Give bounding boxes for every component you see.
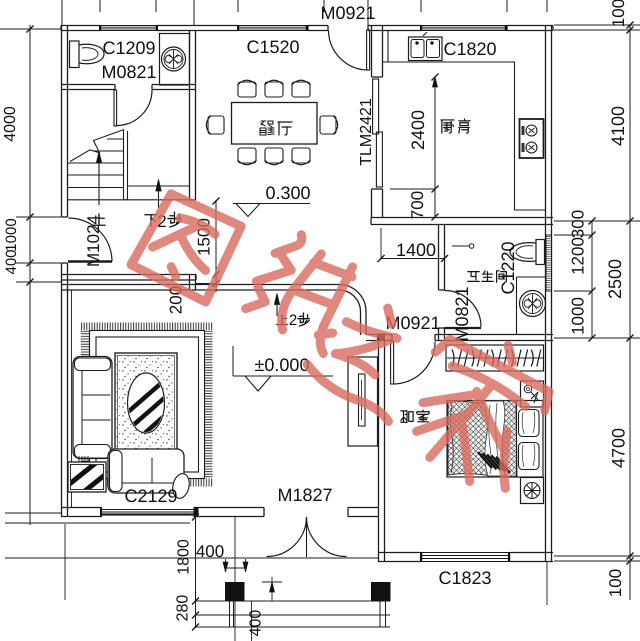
svg-text:100: 100 [609, 0, 628, 27]
svg-text:±0.000: ±0.000 [255, 355, 310, 375]
svg-text:300: 300 [569, 210, 588, 238]
svg-text:100: 100 [606, 569, 625, 597]
svg-text:M1827: M1827 [277, 485, 332, 505]
svg-text:2400: 2400 [408, 110, 428, 150]
svg-text:2: 2 [289, 312, 297, 329]
svg-text:M1024: M1024 [84, 215, 103, 267]
svg-text:1000: 1000 [3, 218, 20, 251]
svg-text:C1209: C1209 [102, 38, 155, 58]
svg-text:C2129: C2129 [124, 486, 177, 506]
svg-text:400: 400 [196, 542, 224, 561]
svg-text:1400: 1400 [396, 240, 436, 260]
svg-text:400: 400 [248, 610, 265, 637]
svg-text:M0921: M0921 [320, 3, 375, 23]
svg-text:1800: 1800 [176, 539, 193, 575]
svg-text:0.300: 0.300 [265, 183, 310, 203]
svg-text:400: 400 [3, 249, 20, 274]
svg-text:M0821: M0821 [452, 286, 472, 341]
svg-text:C1520: C1520 [246, 37, 299, 57]
svg-text:1200: 1200 [569, 237, 588, 275]
svg-text:4000: 4000 [2, 106, 19, 142]
svg-text:C1820: C1820 [443, 39, 496, 59]
svg-text:1000: 1000 [569, 297, 588, 335]
svg-text:4100: 4100 [608, 106, 628, 146]
svg-text:2500: 2500 [605, 259, 625, 299]
svg-text:TLM2421: TLM2421 [358, 98, 375, 166]
svg-text:700: 700 [408, 191, 427, 219]
svg-text:4700: 4700 [609, 428, 629, 468]
svg-text:C1220: C1220 [498, 241, 518, 294]
svg-text:M0821: M0821 [101, 62, 156, 82]
svg-text:280: 280 [175, 595, 192, 622]
svg-text:C1823: C1823 [438, 568, 491, 588]
